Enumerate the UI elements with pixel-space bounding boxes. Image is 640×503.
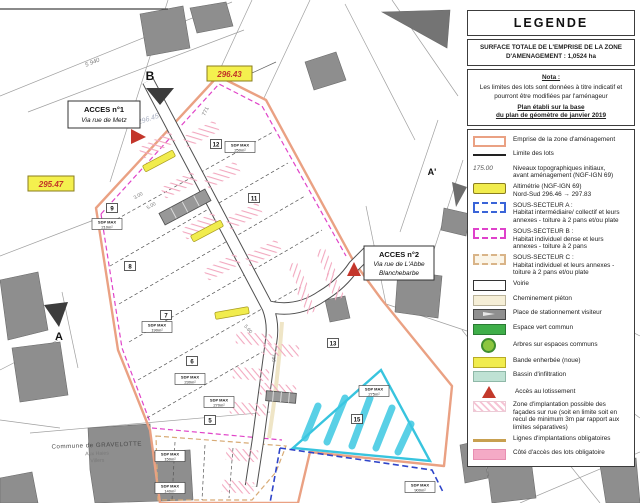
legend-title: LEGENDE: [467, 10, 635, 36]
legend-item-limite-lots: Limite des lots: [473, 150, 629, 161]
lignes-implantation-swatch: [473, 439, 506, 442]
svg-text:210m²: 210m²: [101, 224, 113, 229]
acces-2-title: ACCES n°2: [379, 250, 419, 259]
limite-lots-swatch: [473, 154, 506, 156]
lot-number: 12: [211, 140, 222, 149]
lot-number: 13: [328, 339, 339, 348]
lot-numbers: 12 11 9 8 7 6 5 13 15: [107, 140, 363, 425]
legend-item-sous-secteur-c: SOUS-SECTEUR C :Habitat individuel et le…: [473, 254, 629, 277]
legend-items-box: Emprise de la zone d'aménagement Limite …: [467, 129, 635, 468]
zone-implantation-hatch: [138, 120, 344, 494]
legend-item-cote-acces: Côté d'accès des lots obligatoire: [473, 449, 629, 460]
legend-item-arbres: Arbres sur espaces communs: [473, 338, 629, 353]
svg-text:Villers: Villers: [90, 458, 105, 465]
section-a-prime-triangle: [452, 182, 467, 207]
svg-text:900m²: 900m²: [414, 487, 426, 492]
legend-item-espace-vert: Espace vert commun: [473, 324, 629, 335]
legend-item-stationnement: Place de stationnement visiteur: [473, 309, 629, 320]
cheminement-swatch: [473, 295, 506, 306]
svg-text:230m²: 230m²: [184, 379, 196, 384]
nota-basis: Plan établi sur la base du plan de géomè…: [471, 104, 631, 121]
voirie-swatch: [473, 280, 506, 291]
surface-line2: D'AMENAGEMENT : 1,0524 ha: [470, 53, 632, 62]
sous-secteur-a-swatch: [473, 202, 506, 213]
svg-text:13: 13: [330, 341, 337, 347]
sdp-label: SDP MAX210m²: [92, 219, 122, 230]
building: [140, 6, 190, 56]
building: [382, 10, 450, 48]
acces-1-triangle: [131, 129, 146, 144]
building: [305, 52, 346, 90]
legend-item-cheminement: Cheminement piéton: [473, 295, 629, 306]
svg-text:3.00: 3.00: [133, 191, 145, 201]
acces-2-callout: ACCES n°2 Via rue de L'Abbe Blanchebarbe: [364, 246, 434, 280]
legend-nota-box: Nota : Les limites des lots sont données…: [467, 69, 635, 126]
niveaux-swatch: 175.00: [473, 165, 506, 172]
nota-body: Les limites des lots sont données à titr…: [471, 84, 631, 101]
legend-item-voirie: Voirie: [473, 280, 629, 291]
section-a-triangle: [44, 302, 68, 327]
site-plan-sheet: B A A' 296.43 295.47 296.45 5 940 771 3.…: [0, 0, 640, 503]
building: [0, 272, 48, 340]
lot-number: 11: [249, 194, 260, 203]
legend-item-sous-secteur-b: SOUS-SECTEUR B :Habitat individuel dense…: [473, 228, 629, 251]
legend-item-emprise: Emprise de la zone d'aménagement: [473, 136, 629, 147]
svg-text:275m²: 275m²: [368, 391, 380, 396]
svg-text:11: 11: [251, 196, 258, 202]
building: [325, 296, 350, 322]
legend-item-niveaux: 175.00 Niveaux topographiques initiaux,a…: [473, 165, 629, 180]
legend-surface-box: SURFACE TOTALE DE L'EMPRISE DE LA ZONE D…: [467, 39, 635, 66]
svg-text:140m²: 140m²: [164, 488, 176, 493]
legend-item-bande-enherbee: Bande enherbée (noue): [473, 357, 629, 368]
legend-item-sous-secteur-a: SOUS-SECTEUR A :Habitat intermédiaire/ c…: [473, 202, 629, 225]
svg-text:Aux Haies: Aux Haies: [85, 451, 109, 458]
svg-text:190m²: 190m²: [151, 327, 163, 332]
legend-item-lignes-implantation: Lignes d'implantations obligatoires: [473, 435, 629, 446]
sdp-label: SDP MAX230m²: [175, 374, 205, 385]
altimetry-value: 295.47: [38, 180, 64, 189]
svg-text:750: 750: [270, 353, 277, 362]
sdp-label: SDP MAX250m²: [225, 142, 255, 153]
svg-text:150m²: 150m²: [164, 456, 176, 461]
sdp-label: SDP MAX140m²: [155, 483, 185, 494]
lot-number: 9: [107, 204, 118, 213]
section-a-label: A: [55, 331, 63, 343]
acces-1-street: Via rue de Metz: [81, 117, 127, 124]
legend-item-bassin: Bassin d'infiltration: [473, 371, 629, 382]
acces-2-street: Via rue de L'Abbe: [373, 261, 425, 268]
svg-text:15: 15: [354, 417, 361, 423]
section-b-label: B: [146, 69, 155, 83]
acces-triangle-swatch: [482, 386, 496, 398]
building: [12, 342, 68, 402]
sdp-label: SDP MAX270m²: [204, 397, 234, 408]
acces-1-title: ACCES n°1: [84, 105, 124, 114]
sous-secteur-b-swatch: [473, 228, 506, 239]
sdp-label: SDP MAX150m²: [155, 451, 185, 462]
sdp-label: SDP MAX190m²: [142, 322, 172, 333]
legend-panel: LEGENDE SURFACE TOTALE DE L'EMPRISE DE L…: [467, 10, 635, 467]
acces-1-callout: ACCES n°1 Via rue de Metz: [68, 101, 140, 128]
svg-text:250m²: 250m²: [234, 147, 246, 152]
bassin-swatch: [473, 371, 506, 382]
lot-number: 15: [352, 415, 363, 424]
emprise-swatch: [473, 136, 506, 147]
parking-strip: [266, 391, 297, 404]
building: [190, 2, 233, 33]
svg-text:270m²: 270m²: [213, 402, 225, 407]
svg-text:12: 12: [213, 142, 220, 148]
legend-item-zone-implantation: Zone d'implantation possible des façades…: [473, 401, 629, 431]
building: [0, 472, 38, 503]
legend-item-altimetrie: Altimétrie (NGF-IGN 69)Nord-Sud 296.46 →…: [473, 183, 629, 198]
surface-line1: SURFACE TOTALE DE L'EMPRISE DE LA ZONE: [470, 44, 632, 53]
lot-number: 8: [125, 262, 136, 271]
altimetry-value: 296.43: [216, 70, 242, 79]
road-label: 5 940: [85, 57, 102, 68]
sdp-label: SDP MAX275m²: [359, 386, 389, 397]
espace-vert-swatch: [473, 324, 506, 335]
svg-text:771: 771: [201, 106, 210, 117]
legend-item-acces: Accès au lotissement: [473, 386, 629, 398]
acces-2-street2: Blanchebarbe: [379, 270, 419, 277]
lot-number: 7: [161, 311, 172, 320]
section-a-prime-label: A': [428, 167, 437, 177]
nota-title: Nota :: [471, 74, 631, 82]
altimetrie-swatch: [473, 183, 506, 194]
building: [441, 208, 470, 236]
cote-acces-swatch: [473, 449, 506, 460]
lot-number: 5: [205, 416, 216, 425]
sous-secteur-c-swatch: [473, 254, 506, 265]
lot-number: 6: [187, 357, 198, 366]
arbre-swatch: [481, 338, 496, 353]
sdp-label: SDP MAX900m²: [405, 482, 435, 493]
zone-implantation-swatch: [473, 401, 506, 412]
bande-enherbee-swatch: [473, 357, 506, 368]
stationnement-swatch: [473, 309, 506, 320]
svg-text:5.00: 5.00: [146, 201, 158, 211]
